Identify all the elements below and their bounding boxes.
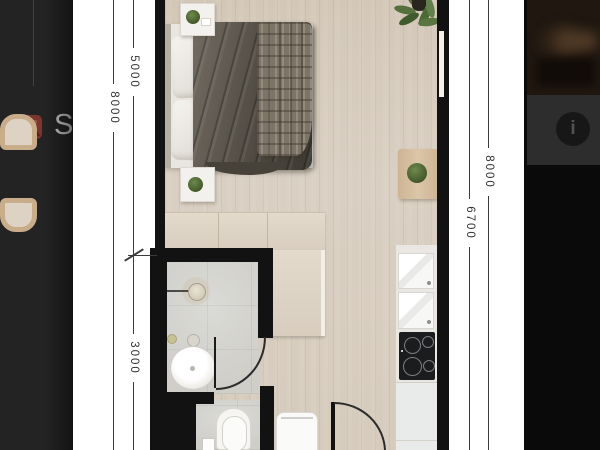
photo-thumbnail[interactable] xyxy=(527,0,600,95)
plant xyxy=(186,10,200,24)
faucet-dot xyxy=(427,320,431,324)
dim-label-right-inner: 6700 xyxy=(462,173,478,273)
soap-dispenser xyxy=(167,334,177,344)
wardrobe-seam xyxy=(218,213,219,251)
decor-box xyxy=(201,18,211,26)
background-dimension-line xyxy=(33,0,34,86)
wardrobe-seam xyxy=(267,213,268,251)
toilet-seat xyxy=(222,416,247,450)
thumbnail-shape xyxy=(559,32,597,50)
dimmed-page-lower-right xyxy=(527,165,600,450)
nightstand xyxy=(180,167,215,202)
nightstand xyxy=(180,3,215,36)
dim-line xyxy=(488,196,489,450)
dim-label-left-inner-top: 5000 xyxy=(126,22,142,122)
info-icon[interactable]: i xyxy=(556,112,590,146)
lounge-chair xyxy=(0,198,37,232)
counter-seam xyxy=(396,440,437,441)
washer-panel xyxy=(281,417,313,419)
duct-shaft xyxy=(150,392,196,450)
plant xyxy=(188,177,203,192)
lounge-chair xyxy=(0,114,37,150)
shower-head xyxy=(188,283,206,301)
burner-ring xyxy=(422,336,434,348)
burner-ring xyxy=(403,357,422,376)
dim-line xyxy=(469,247,470,450)
dim-label-right-outer: 8000 xyxy=(481,122,497,222)
hob-control xyxy=(401,350,403,352)
sink-unit xyxy=(398,292,434,329)
lightbox-stage: St xyxy=(0,0,600,450)
sink-unit xyxy=(398,253,434,289)
dim-line xyxy=(469,0,470,199)
washbasin xyxy=(170,346,216,390)
wall-bathroom-top xyxy=(150,248,273,262)
plant-pot xyxy=(412,0,426,11)
dim-line xyxy=(133,96,134,334)
wardrobe xyxy=(165,212,325,251)
burner-ring xyxy=(404,337,421,354)
wall-bathroom-right xyxy=(258,250,273,338)
dim-label-left-inner-bottom: 3000 xyxy=(126,308,142,408)
counter-lower xyxy=(396,382,437,450)
photo-edge-shadow xyxy=(45,0,73,450)
washing-machine xyxy=(276,412,318,450)
basin-drain xyxy=(190,366,195,371)
wall-wc-right xyxy=(260,386,274,450)
faucet-dot xyxy=(427,281,431,285)
table-plant xyxy=(407,163,427,183)
wardrobe-return xyxy=(267,250,325,336)
wardrobe-front-edge xyxy=(321,250,325,336)
dim-line xyxy=(113,132,114,450)
tp-holder xyxy=(202,438,215,450)
side-table xyxy=(398,149,438,199)
corner-plant xyxy=(394,0,442,34)
window xyxy=(439,31,444,97)
thumbnail-shape xyxy=(537,58,595,86)
plaid-throw xyxy=(257,22,312,156)
wall-left xyxy=(155,0,165,252)
induction-hob xyxy=(399,332,435,380)
dim-label-left-outer: 8000 xyxy=(106,58,122,158)
burner-ring xyxy=(423,360,435,372)
